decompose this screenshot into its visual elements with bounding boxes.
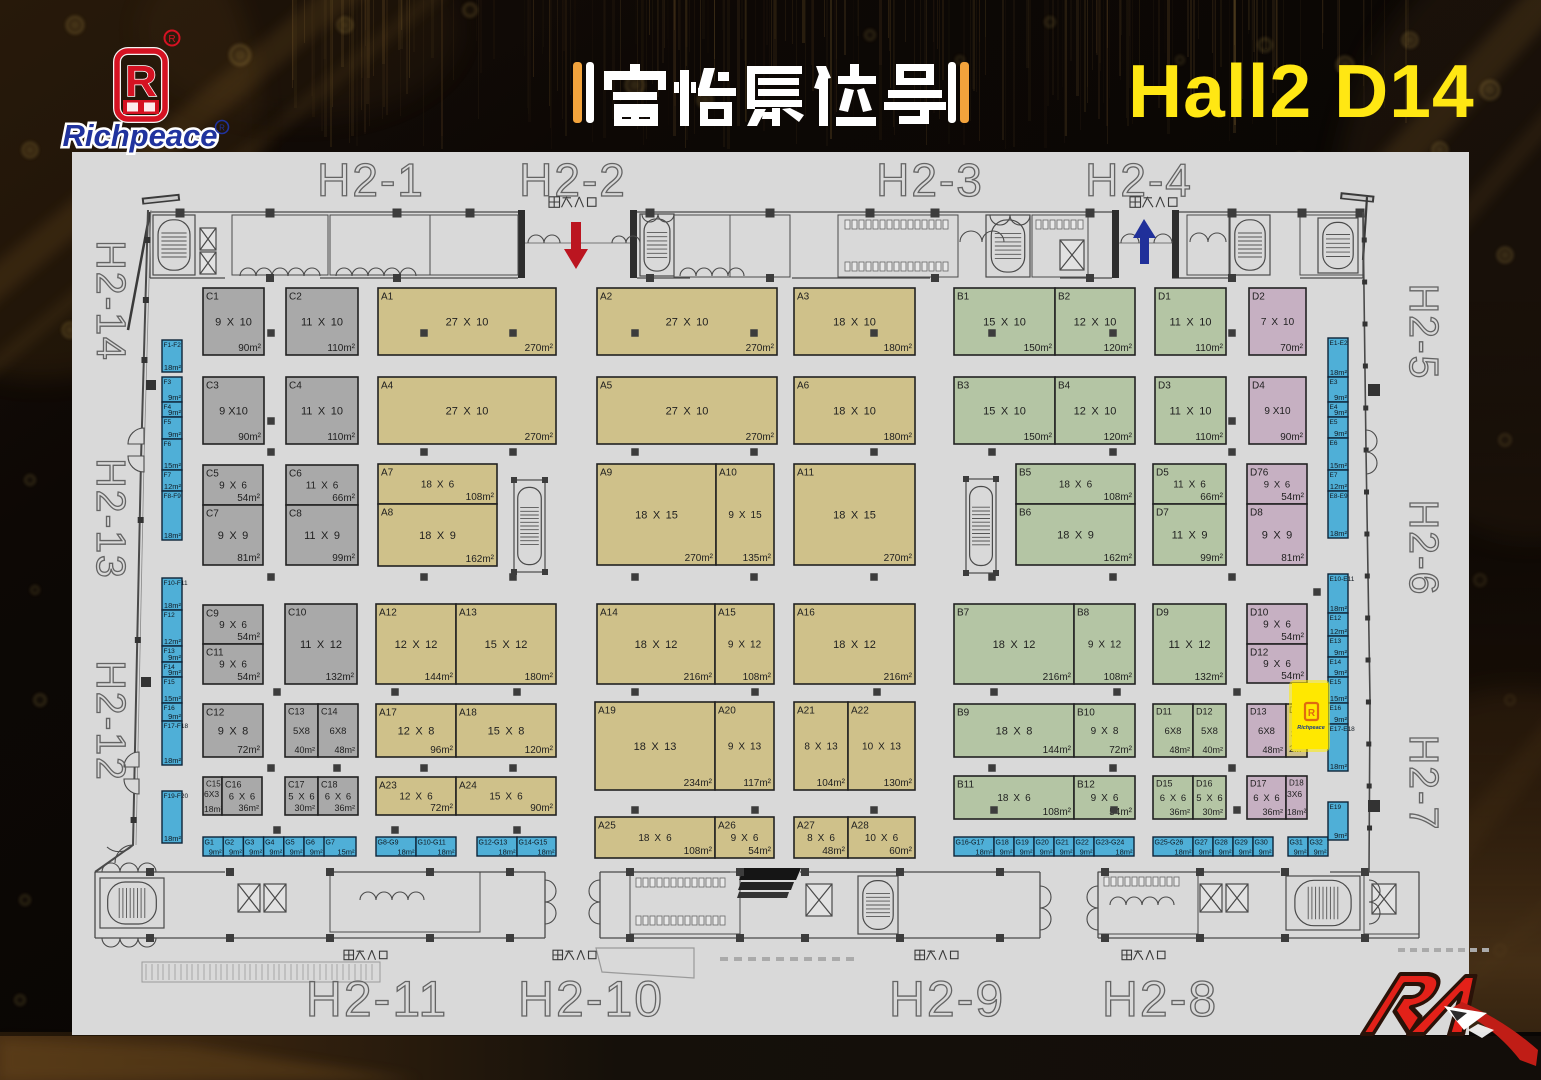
- svg-text:6 X 6: 6 X 6: [325, 791, 351, 802]
- svg-text:270m²: 270m²: [884, 553, 913, 564]
- svg-text:D16: D16: [1196, 779, 1213, 789]
- svg-text:A24: A24: [459, 781, 477, 792]
- svg-text:18 X 6: 18 X 6: [997, 793, 1031, 804]
- svg-text:110m²: 110m²: [327, 343, 355, 354]
- svg-text:54m²: 54m²: [237, 632, 260, 643]
- svg-text:9 X 6: 9 X 6: [1091, 793, 1119, 804]
- svg-text:36m²: 36m²: [1262, 807, 1283, 817]
- svg-text:E5: E5: [1330, 419, 1338, 426]
- svg-text:9 X 8: 9 X 8: [218, 725, 249, 737]
- svg-text:216m²: 216m²: [684, 672, 713, 683]
- svg-text:C5: C5: [206, 469, 219, 480]
- svg-text:R: R: [168, 34, 175, 45]
- svg-text:C15: C15: [206, 780, 221, 789]
- svg-text:72m²: 72m²: [1109, 745, 1132, 756]
- svg-text:54m²: 54m²: [237, 672, 260, 683]
- svg-text:18 X 10: 18 X 10: [833, 316, 876, 328]
- svg-text:F8-F9: F8-F9: [164, 493, 182, 500]
- svg-text:G2: G2: [225, 840, 234, 847]
- svg-text:18m²: 18m²: [164, 756, 182, 765]
- svg-text:B10: B10: [1077, 708, 1095, 719]
- svg-text:G16-G17: G16-G17: [956, 840, 985, 847]
- svg-text:A25: A25: [598, 821, 616, 832]
- svg-text:117m²: 117m²: [743, 778, 771, 789]
- svg-text:G28: G28: [1215, 840, 1228, 847]
- svg-text:A22: A22: [851, 706, 869, 717]
- svg-text:9 X 10: 9 X 10: [215, 316, 252, 328]
- svg-text:C2: C2: [289, 292, 302, 303]
- svg-text:A5: A5: [600, 381, 613, 392]
- svg-text:A9: A9: [600, 468, 613, 479]
- svg-text:108m²: 108m²: [684, 846, 713, 857]
- svg-text:C3: C3: [206, 381, 219, 392]
- svg-text:9 X 6: 9 X 6: [219, 481, 247, 492]
- svg-text:18m²: 18m²: [1330, 368, 1348, 377]
- svg-text:5X8: 5X8: [293, 726, 310, 737]
- svg-text:135m²: 135m²: [743, 553, 772, 564]
- svg-text:G4: G4: [265, 840, 274, 847]
- svg-text:12m²: 12m²: [1330, 627, 1348, 636]
- svg-text:E6: E6: [1330, 440, 1338, 447]
- svg-text:270m²: 270m²: [746, 343, 775, 354]
- svg-text:72m²: 72m²: [237, 745, 260, 756]
- svg-text:9m²: 9m²: [1239, 848, 1252, 857]
- svg-text:9m²: 9m²: [290, 848, 303, 857]
- svg-text:48m²: 48m²: [334, 745, 355, 755]
- svg-text:E1-E2: E1-E2: [1330, 340, 1348, 347]
- svg-text:G10-G11: G10-G11: [418, 840, 446, 847]
- svg-text:H2-9: H2-9: [889, 971, 1005, 1027]
- svg-text:G32: G32: [1310, 840, 1323, 847]
- svg-text:6X8: 6X8: [1165, 726, 1182, 737]
- svg-text:E3: E3: [1330, 379, 1338, 386]
- svg-text:D5: D5: [1156, 468, 1169, 479]
- svg-text:70m²: 70m²: [1280, 343, 1303, 354]
- svg-text:18 X 6: 18 X 6: [421, 480, 455, 491]
- svg-text:15 X 10: 15 X 10: [983, 405, 1026, 417]
- svg-text:9 X 6: 9 X 6: [731, 833, 759, 844]
- svg-text:9 X 9: 9 X 9: [1262, 529, 1293, 541]
- svg-text:H2-5: H2-5: [1401, 284, 1447, 381]
- svg-text:150m²: 150m²: [1024, 432, 1053, 443]
- svg-text:G27: G27: [1195, 840, 1208, 847]
- svg-text:54m²: 54m²: [1281, 632, 1304, 643]
- svg-text:9 X 8: 9 X 8: [1091, 726, 1119, 737]
- svg-text:A14: A14: [600, 608, 618, 619]
- svg-text:D76: D76: [1250, 468, 1269, 479]
- svg-text:R: R: [125, 57, 157, 106]
- svg-text:108m²: 108m²: [1104, 672, 1133, 683]
- svg-text:66m²: 66m²: [1200, 492, 1223, 503]
- svg-text:18 X 13: 18 X 13: [634, 741, 677, 753]
- svg-text:18m²: 18m²: [498, 848, 516, 857]
- svg-text:D1: D1: [1158, 292, 1171, 303]
- svg-text:12m²: 12m²: [164, 637, 182, 646]
- svg-text:9m²: 9m²: [1020, 848, 1033, 857]
- svg-text:18 X 8: 18 X 8: [996, 725, 1033, 737]
- svg-text:D17: D17: [1250, 779, 1267, 789]
- svg-text:9m²: 9m²: [1334, 648, 1347, 657]
- svg-text:H2-8: H2-8: [1102, 971, 1218, 1027]
- svg-text:G21: G21: [1056, 840, 1069, 847]
- svg-text:270m²: 270m²: [746, 432, 775, 443]
- svg-text:7 X 10: 7 X 10: [1261, 317, 1295, 328]
- svg-text:162m²: 162m²: [466, 554, 495, 565]
- svg-text:9 X 6: 9 X 6: [1263, 659, 1291, 670]
- svg-text:120m²: 120m²: [1104, 343, 1133, 354]
- svg-text:H2-7: H2-7: [1401, 735, 1447, 832]
- svg-text:18m²: 18m²: [1287, 807, 1307, 817]
- svg-text:E14: E14: [1330, 659, 1342, 666]
- svg-text:108m²: 108m²: [743, 672, 772, 683]
- svg-text:D2: D2: [1252, 292, 1265, 303]
- svg-text:18 X 9: 18 X 9: [419, 530, 456, 542]
- svg-text:12 X 10: 12 X 10: [1074, 405, 1117, 417]
- svg-text:G23-G24: G23-G24: [1096, 840, 1125, 847]
- svg-text:9 X10: 9 X10: [219, 405, 248, 417]
- svg-text:9 X 15: 9 X 15: [728, 510, 762, 521]
- svg-text:A7: A7: [381, 468, 394, 479]
- svg-text:18 X 9: 18 X 9: [1057, 529, 1094, 541]
- svg-text:15 X 6: 15 X 6: [489, 792, 523, 803]
- svg-text:5X8: 5X8: [1201, 726, 1218, 737]
- svg-text:110m²: 110m²: [327, 432, 355, 443]
- svg-text:C7: C7: [206, 509, 219, 520]
- svg-text:E15: E15: [1330, 679, 1342, 686]
- svg-text:18 X 12: 18 X 12: [635, 639, 678, 651]
- svg-text:48m²: 48m²: [1262, 745, 1283, 755]
- svg-text:H2-12: H2-12: [88, 660, 134, 782]
- svg-text:11 X 6: 11 X 6: [306, 481, 339, 492]
- svg-text:B5: B5: [1019, 468, 1032, 479]
- svg-text:12 X 10: 12 X 10: [1074, 316, 1117, 328]
- svg-text:F6: F6: [164, 441, 172, 448]
- svg-text:18 X 12: 18 X 12: [993, 639, 1036, 651]
- svg-text:A17: A17: [379, 708, 397, 719]
- svg-text:12m²: 12m²: [164, 482, 182, 491]
- svg-text:9m²: 9m²: [229, 848, 242, 857]
- svg-text:G6: G6: [306, 840, 315, 847]
- svg-text:9 X 12: 9 X 12: [728, 640, 762, 651]
- svg-text:G30: G30: [1255, 840, 1268, 847]
- svg-text:60m²: 60m²: [889, 846, 912, 857]
- svg-text:27 X 10: 27 X 10: [666, 316, 709, 328]
- svg-text:9 X10: 9 X10: [1264, 406, 1291, 417]
- svg-text:C17: C17: [288, 780, 305, 790]
- svg-text:90m²: 90m²: [530, 803, 553, 814]
- svg-text:11 X 12: 11 X 12: [1169, 639, 1211, 651]
- svg-text:A20: A20: [718, 706, 736, 717]
- svg-text:3X6: 3X6: [1287, 789, 1302, 799]
- svg-text:36m²: 36m²: [334, 803, 355, 813]
- svg-text:9m²: 9m²: [269, 848, 282, 857]
- svg-text:9m²: 9m²: [1080, 848, 1093, 857]
- svg-text:9m²: 9m²: [1259, 848, 1272, 857]
- svg-text:9 X 9: 9 X 9: [218, 530, 249, 542]
- svg-text:E13: E13: [1330, 638, 1342, 645]
- svg-text:D10: D10: [1250, 608, 1269, 619]
- svg-text:18 X 10: 18 X 10: [833, 405, 876, 417]
- svg-text:D12: D12: [1250, 648, 1269, 659]
- svg-text:A16: A16: [797, 608, 815, 619]
- svg-text:54m²: 54m²: [1281, 492, 1304, 503]
- svg-text:G25-G26: G25-G26: [1155, 840, 1184, 847]
- svg-text:104m²: 104m²: [817, 778, 846, 789]
- svg-text:B1: B1: [957, 292, 970, 303]
- svg-text:H2-13: H2-13: [88, 458, 134, 580]
- svg-text:G18: G18: [996, 840, 1009, 847]
- svg-text:F12: F12: [164, 612, 176, 619]
- svg-text:216m²: 216m²: [884, 672, 913, 683]
- svg-text:D4: D4: [1252, 381, 1265, 392]
- svg-text:F17-F18: F17-F18: [164, 723, 189, 730]
- svg-text:A23: A23: [379, 781, 397, 792]
- svg-text:A12: A12: [379, 608, 397, 619]
- svg-text:54m²: 54m²: [237, 493, 260, 504]
- svg-text:B2: B2: [1058, 292, 1071, 303]
- svg-text:6 X 6: 6 X 6: [1253, 793, 1279, 804]
- svg-text:15 X 12: 15 X 12: [485, 639, 528, 651]
- svg-text:6X3: 6X3: [204, 789, 219, 799]
- svg-text:72m²: 72m²: [430, 803, 453, 814]
- svg-text:11 X 12: 11 X 12: [300, 639, 342, 651]
- svg-text:40m²: 40m²: [294, 745, 315, 755]
- svg-text:D12: D12: [1196, 707, 1213, 717]
- svg-text:18m²: 18m²: [164, 363, 182, 372]
- svg-text:48m²: 48m²: [1169, 745, 1190, 755]
- svg-text:18 X 6: 18 X 6: [638, 833, 672, 844]
- svg-text:F15: F15: [164, 679, 176, 686]
- svg-text:C16: C16: [225, 780, 242, 790]
- svg-text:11 X 6: 11 X 6: [1173, 480, 1206, 491]
- svg-text:H2-6: H2-6: [1401, 500, 1447, 597]
- svg-text:B6: B6: [1019, 508, 1032, 519]
- svg-text:E16: E16: [1330, 705, 1342, 712]
- svg-text:270m²: 270m²: [685, 553, 714, 564]
- svg-text:B7: B7: [957, 608, 970, 619]
- svg-text:11 X 10: 11 X 10: [1170, 316, 1212, 328]
- svg-text:180m²: 180m²: [525, 672, 554, 683]
- svg-text:G14-G15: G14-G15: [519, 840, 548, 847]
- svg-text:G19: G19: [1016, 840, 1029, 847]
- svg-text:270m²: 270m²: [525, 343, 554, 354]
- svg-text:12 X 12: 12 X 12: [395, 639, 438, 651]
- svg-text:12 X 6: 12 X 6: [399, 792, 433, 803]
- svg-text:9 X 13: 9 X 13: [728, 742, 762, 753]
- svg-text:9m²: 9m²: [168, 653, 181, 662]
- svg-text:10 X 13: 10 X 13: [862, 742, 901, 753]
- svg-text:9m²: 9m²: [1294, 848, 1307, 857]
- svg-text:162m²: 162m²: [1104, 553, 1133, 564]
- svg-text:9m²: 9m²: [1060, 848, 1073, 857]
- svg-text:9m²: 9m²: [1334, 831, 1347, 840]
- svg-text:D13: D13: [1250, 707, 1267, 717]
- svg-text:5 X 6: 5 X 6: [288, 791, 314, 802]
- svg-text:9 X 6: 9 X 6: [219, 620, 247, 631]
- svg-text:18m²: 18m²: [1330, 529, 1348, 538]
- svg-text:110m²: 110m²: [1195, 343, 1223, 354]
- svg-text:D3: D3: [1158, 381, 1171, 392]
- svg-text:A27: A27: [797, 821, 815, 832]
- svg-text:18m²: 18m²: [537, 848, 555, 857]
- svg-text:180m²: 180m²: [884, 432, 913, 443]
- svg-text:G20: G20: [1036, 840, 1049, 847]
- svg-text:G3: G3: [245, 840, 254, 847]
- svg-text:11 X 10: 11 X 10: [1170, 405, 1212, 417]
- svg-text:A11: A11: [797, 468, 814, 479]
- svg-text:66m²: 66m²: [332, 493, 355, 504]
- svg-text:108m²: 108m²: [1104, 492, 1133, 503]
- svg-text:D15: D15: [1156, 779, 1173, 789]
- svg-text:Richpeace: Richpeace: [62, 118, 217, 153]
- svg-text:B9: B9: [957, 708, 970, 719]
- svg-text:40m²: 40m²: [1202, 745, 1223, 755]
- svg-text:9m²: 9m²: [1334, 429, 1347, 438]
- svg-text:9m²: 9m²: [1219, 848, 1232, 857]
- svg-text:G22: G22: [1076, 840, 1089, 847]
- svg-text:120m²: 120m²: [525, 745, 554, 756]
- svg-text:C1: C1: [206, 292, 219, 303]
- svg-text:18m²: 18m²: [975, 848, 993, 857]
- svg-text:B11: B11: [957, 780, 974, 791]
- svg-text:C18: C18: [321, 780, 338, 790]
- svg-text:E7: E7: [1330, 472, 1338, 479]
- svg-text:E10-E11: E10-E11: [1330, 576, 1355, 583]
- svg-text:D7: D7: [1156, 508, 1169, 519]
- svg-text:H2-10: H2-10: [518, 971, 664, 1027]
- svg-text:A3: A3: [797, 292, 810, 303]
- svg-text:15m²: 15m²: [164, 461, 182, 470]
- svg-text:18 X 15: 18 X 15: [635, 509, 678, 521]
- svg-text:90m²: 90m²: [1280, 432, 1303, 443]
- svg-text:18m²: 18m²: [1330, 604, 1348, 613]
- svg-text:81m²: 81m²: [1281, 553, 1304, 564]
- svg-text:C14: C14: [321, 707, 338, 717]
- svg-text:8 X 6: 8 X 6: [807, 833, 835, 844]
- svg-text:C12: C12: [206, 708, 225, 719]
- svg-text:9m²: 9m²: [168, 393, 181, 402]
- svg-text:R: R: [1308, 708, 1316, 719]
- svg-text:F1-F2: F1-F2: [164, 342, 182, 349]
- svg-text:15m²: 15m²: [337, 848, 355, 857]
- svg-text:27 X 10: 27 X 10: [446, 405, 489, 417]
- svg-text:G5: G5: [285, 840, 294, 847]
- svg-text:9m²: 9m²: [1314, 848, 1327, 857]
- svg-text:C4: C4: [289, 381, 302, 392]
- svg-text:9m²: 9m²: [168, 430, 181, 439]
- svg-text:H2-11: H2-11: [306, 971, 448, 1027]
- svg-text:18m²: 18m²: [437, 848, 455, 857]
- svg-text:B12: B12: [1077, 780, 1095, 791]
- svg-text:9m²: 9m²: [168, 712, 181, 721]
- svg-text:C10: C10: [288, 608, 307, 619]
- svg-text:D18: D18: [1289, 779, 1304, 788]
- svg-text:130m²: 130m²: [884, 778, 913, 789]
- svg-text:234m²: 234m²: [684, 778, 713, 789]
- svg-text:A19: A19: [598, 706, 616, 717]
- svg-text:6 X 6: 6 X 6: [229, 791, 255, 802]
- svg-text:11 X 10: 11 X 10: [301, 405, 343, 417]
- svg-text:9 X 6: 9 X 6: [1263, 620, 1291, 631]
- svg-text:A10: A10: [719, 468, 737, 479]
- svg-text:6X8: 6X8: [330, 726, 347, 737]
- svg-text:A8: A8: [381, 508, 394, 519]
- svg-text:144m²: 144m²: [425, 672, 454, 683]
- svg-text:27 X 10: 27 X 10: [446, 316, 489, 328]
- svg-text:11 X 9: 11 X 9: [1172, 529, 1208, 541]
- svg-text:F7: F7: [164, 472, 172, 479]
- svg-text:H2-3: H2-3: [876, 154, 984, 206]
- svg-text:D9: D9: [1156, 608, 1169, 619]
- svg-text:54m²: 54m²: [748, 846, 771, 857]
- svg-text:180m²: 180m²: [884, 343, 913, 354]
- svg-text:G7: G7: [326, 840, 335, 847]
- svg-text:H2-1: H2-1: [317, 154, 425, 206]
- svg-text:A1: A1: [381, 292, 394, 303]
- svg-text:90m²: 90m²: [238, 432, 261, 443]
- svg-text:150m²: 150m²: [1024, 343, 1053, 354]
- svg-text:18m²: 18m²: [204, 804, 224, 814]
- svg-text:96m²: 96m²: [430, 745, 453, 756]
- svg-text:F10-F11: F10-F11: [164, 580, 188, 587]
- svg-text:90m²: 90m²: [238, 343, 261, 354]
- svg-text:C6: C6: [289, 469, 302, 480]
- svg-text:9m²: 9m²: [1000, 848, 1013, 857]
- svg-text:18 X 6: 18 X 6: [1059, 480, 1093, 491]
- svg-text:18m²: 18m²: [1174, 848, 1192, 857]
- svg-text:B3: B3: [957, 381, 970, 392]
- svg-text:9m²: 9m²: [209, 848, 222, 857]
- svg-text:36m²: 36m²: [1169, 807, 1190, 817]
- svg-text:18m²: 18m²: [397, 848, 415, 857]
- svg-text:E19: E19: [1330, 804, 1342, 811]
- svg-text:48m²: 48m²: [822, 846, 845, 857]
- svg-text:A28: A28: [851, 821, 869, 832]
- svg-text:9m²: 9m²: [310, 848, 323, 857]
- svg-text:108m²: 108m²: [1043, 807, 1072, 818]
- svg-text:A6: A6: [797, 381, 810, 392]
- svg-text:15m²: 15m²: [1330, 694, 1348, 703]
- svg-text:9 X 6: 9 X 6: [219, 660, 247, 671]
- svg-text:9m²: 9m²: [1334, 668, 1347, 677]
- svg-text:15m²: 15m²: [164, 694, 182, 703]
- svg-text:108m²: 108m²: [466, 492, 495, 503]
- svg-text:9m²: 9m²: [249, 848, 262, 857]
- svg-text:15m²: 15m²: [1330, 461, 1348, 470]
- svg-text:A13: A13: [459, 608, 477, 619]
- svg-text:9m²: 9m²: [168, 668, 181, 677]
- svg-text:A2: A2: [600, 292, 613, 303]
- svg-text:120m²: 120m²: [1104, 432, 1133, 443]
- svg-text:99m²: 99m²: [1200, 553, 1223, 564]
- svg-text:Hall2 D14: Hall2 D14: [1128, 49, 1475, 133]
- svg-text:C9: C9: [206, 609, 219, 620]
- svg-text:9m²: 9m²: [1334, 715, 1347, 724]
- svg-text:A15: A15: [718, 608, 736, 619]
- svg-text:F16: F16: [164, 705, 176, 712]
- svg-text:18 X 12: 18 X 12: [833, 639, 876, 651]
- svg-text:270m²: 270m²: [525, 432, 554, 443]
- svg-text:10 X 6: 10 X 6: [865, 833, 899, 844]
- svg-text:9m²: 9m²: [1334, 393, 1347, 402]
- svg-text:E8-E9: E8-E9: [1330, 493, 1348, 500]
- svg-text:15 X 10: 15 X 10: [983, 316, 1026, 328]
- svg-text:F19-F20: F19-F20: [164, 793, 189, 800]
- svg-text:132m²: 132m²: [326, 672, 355, 683]
- svg-text:G12-G13: G12-G13: [479, 840, 508, 847]
- svg-text:A21: A21: [797, 706, 815, 717]
- svg-text:C8: C8: [289, 509, 302, 520]
